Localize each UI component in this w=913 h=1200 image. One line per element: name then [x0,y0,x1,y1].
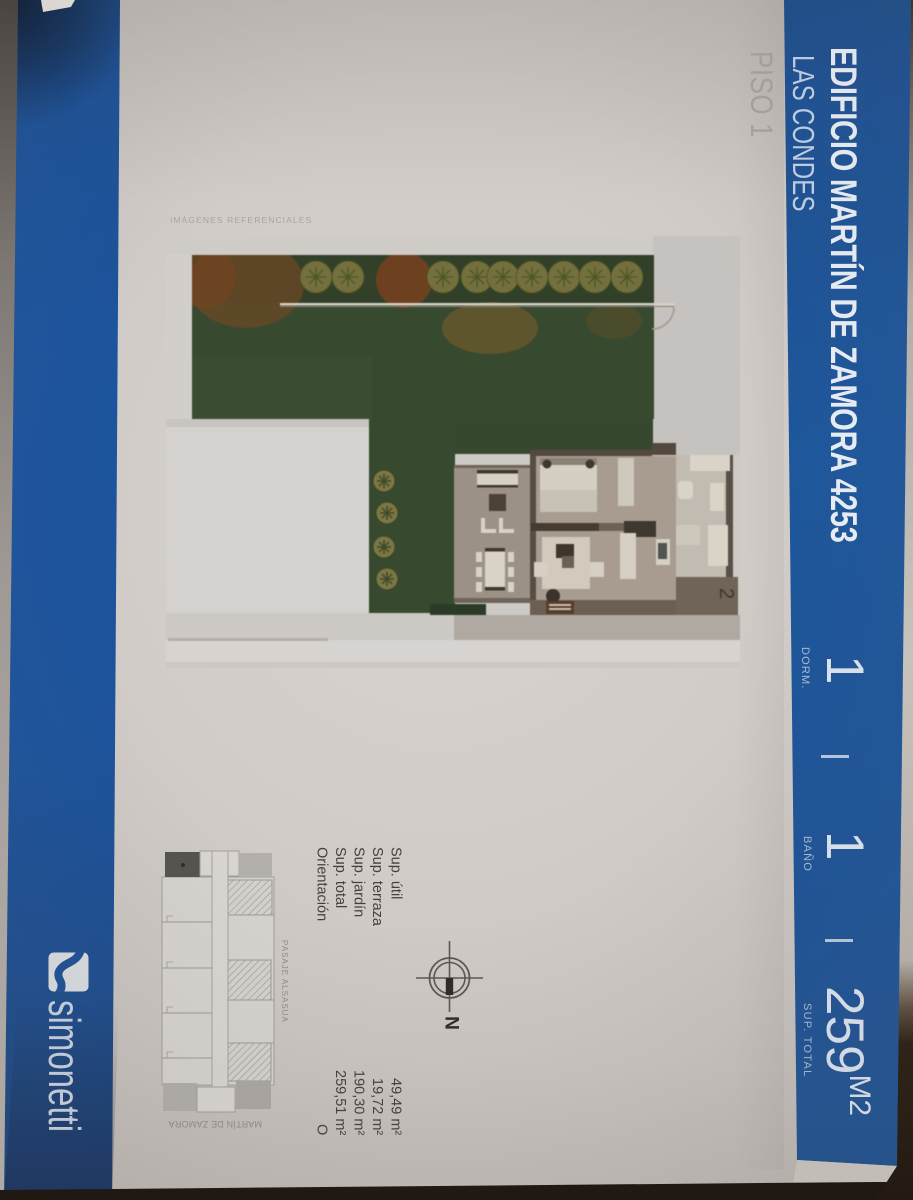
svg-text:N: N [441,1016,462,1030]
svg-text:2: 2 [715,588,737,599]
